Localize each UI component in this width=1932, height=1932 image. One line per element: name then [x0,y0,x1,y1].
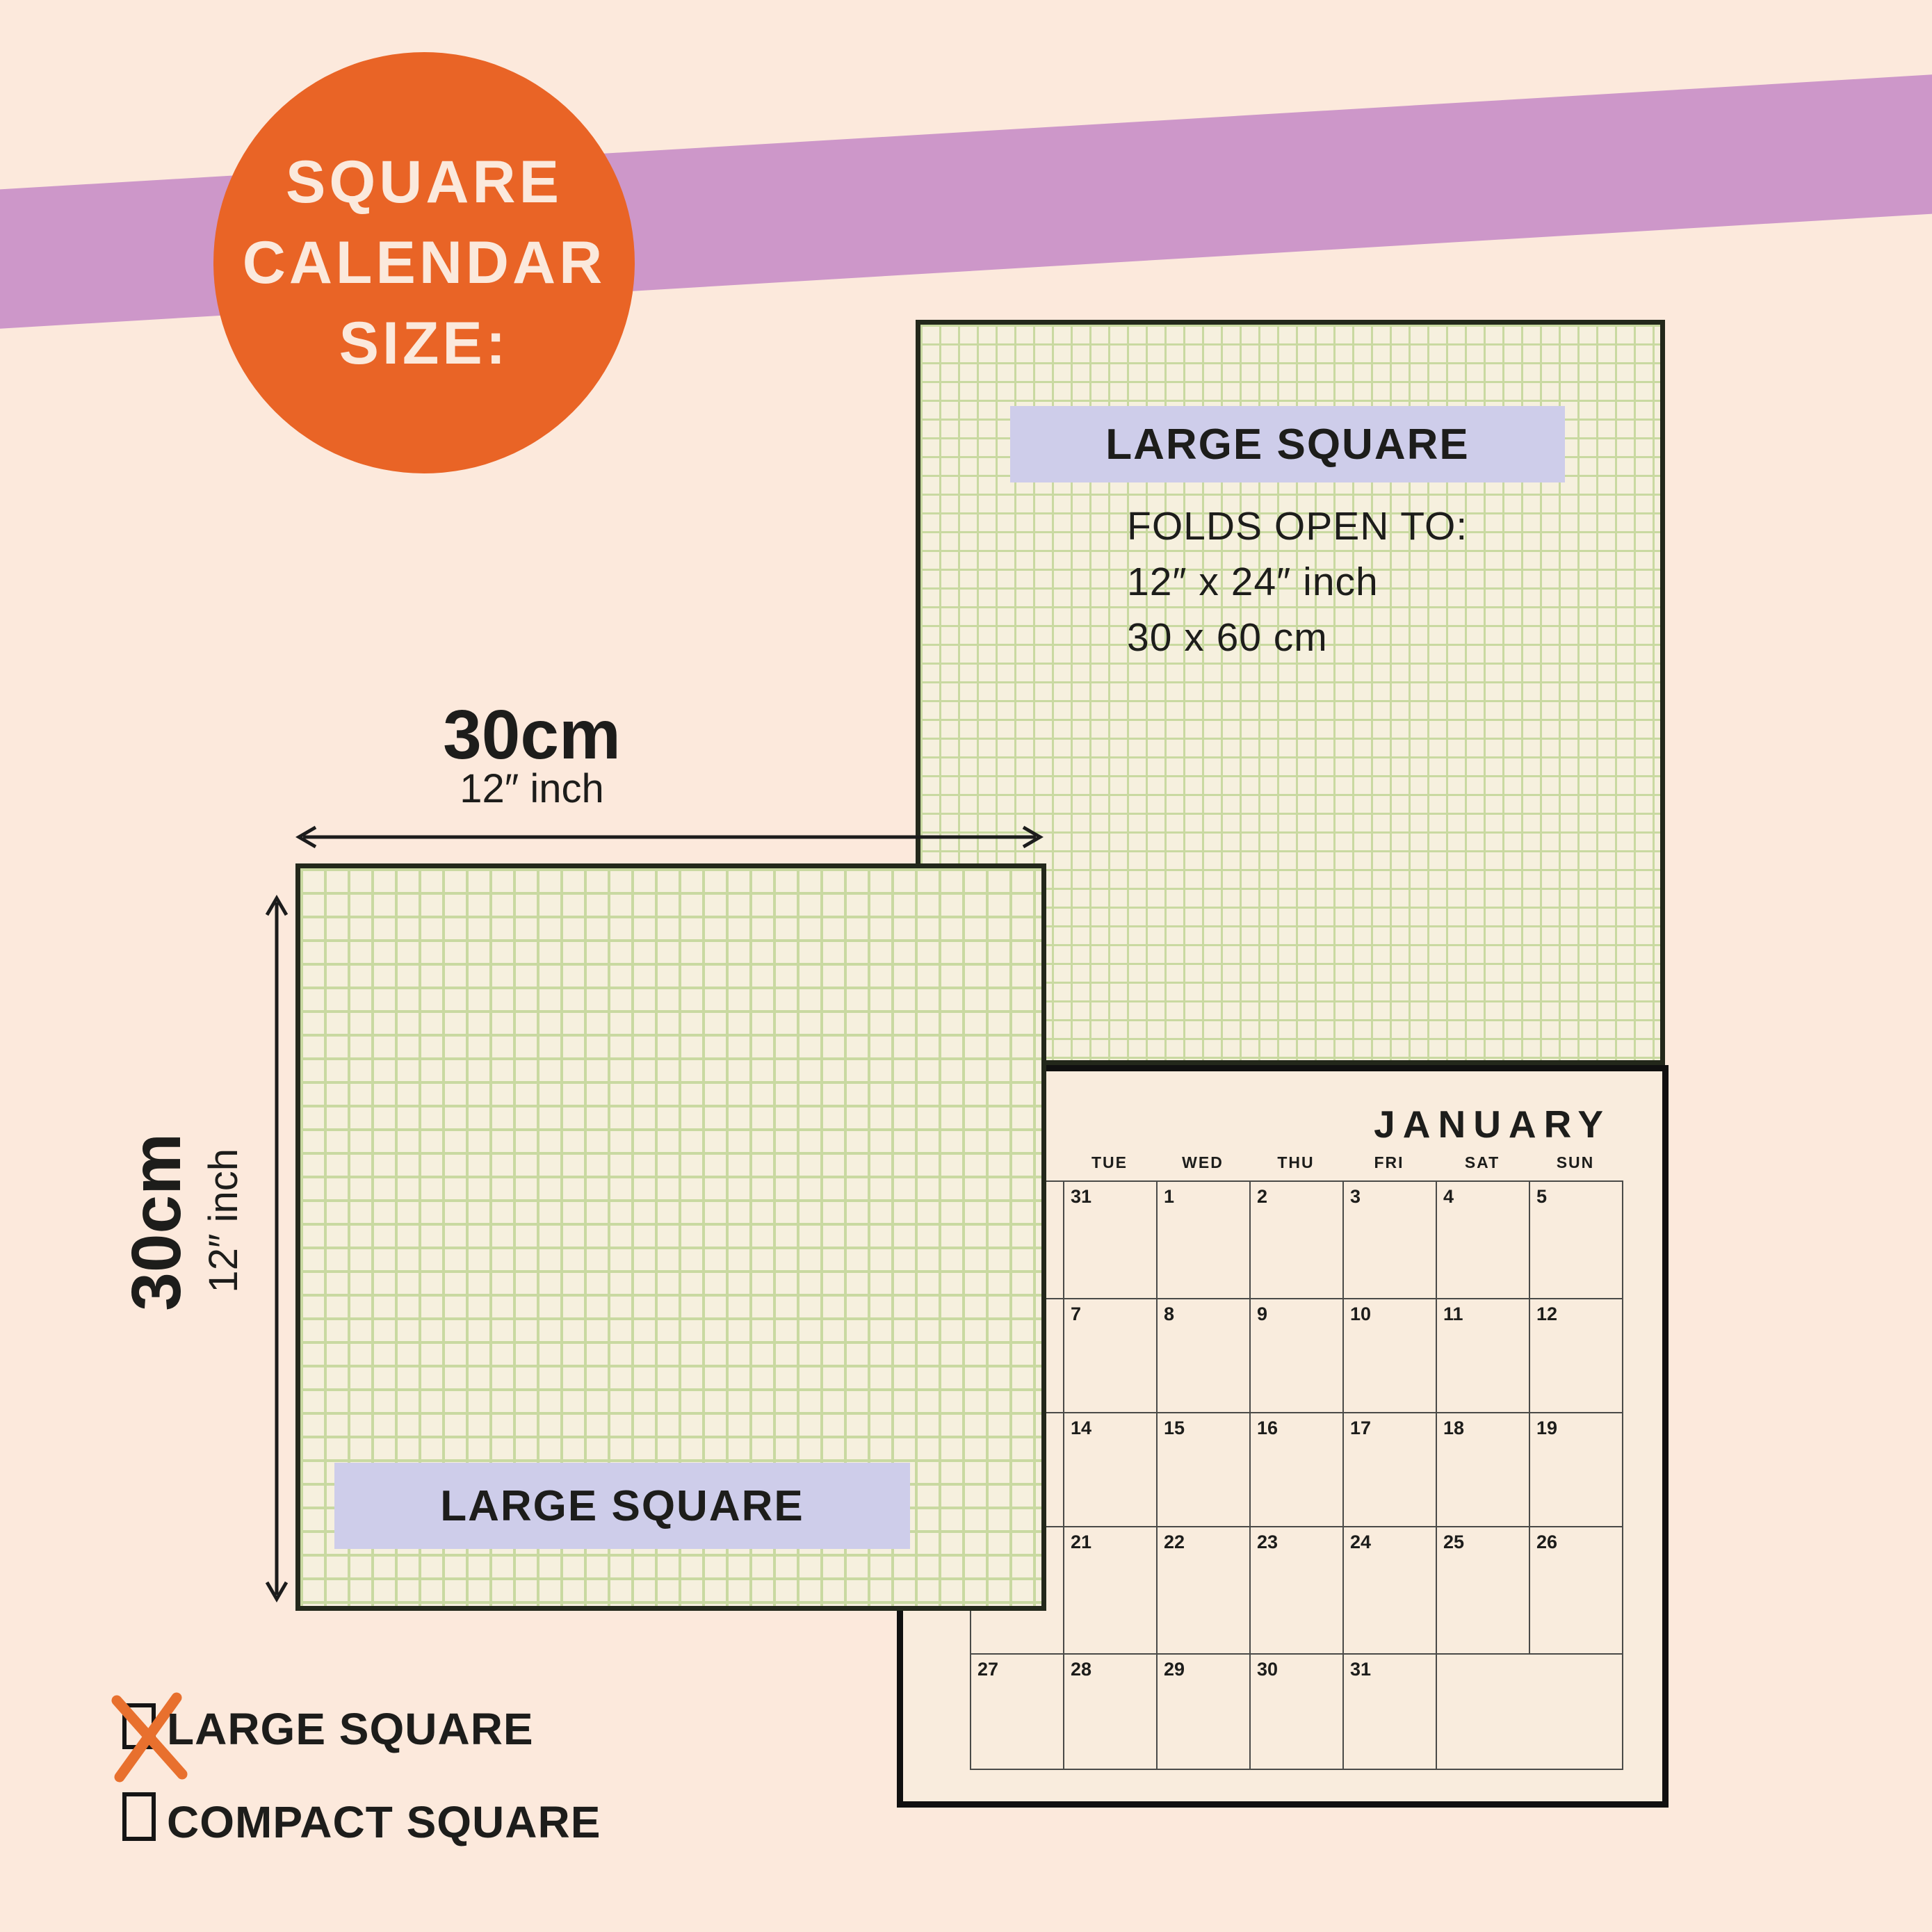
date-cell: 17 [1344,1413,1437,1527]
date-cell: 21 [1064,1527,1158,1655]
height-cm: 30cm [117,1133,197,1311]
folds-size-inch: 12″ x 24″ inch [1127,554,1468,610]
date-cell: 19 [1530,1413,1623,1527]
option-large-square[interactable]: LARGE SQUARE [122,1703,609,1766]
date-cell: 12 [1530,1299,1623,1413]
folds-size-cm: 30 x 60 cm [1127,610,1468,665]
day-name: THU [1249,1153,1342,1172]
date-cell: 29 [1158,1655,1251,1770]
checkbox-compact-square[interactable] [122,1792,156,1841]
height-arrow [263,893,291,1605]
date-cell: 5 [1530,1182,1623,1299]
date-cell: 9 [1251,1299,1344,1413]
day-name: FRI [1342,1153,1436,1172]
calendar-day-names: TUE WED THU FRI SAT SUN [970,1153,1622,1172]
day-name: TUE [1063,1153,1156,1172]
day-name: WED [1156,1153,1249,1172]
badge-line-3: SIZE: [339,303,510,384]
day-name: SUN [1529,1153,1622,1172]
folds-open-text: FOLDS OPEN TO: 12″ x 24″ inch 30 x 60 cm [1127,498,1468,665]
date-cell: 14 [1064,1413,1158,1527]
option-compact-square-label: COMPACT SQUARE [167,1796,601,1848]
date-cell: 24 [1344,1527,1437,1655]
date-cell: 27 [971,1655,1064,1770]
date-cell: 23 [1251,1527,1344,1655]
badge-line-1: SQUARE [286,142,562,222]
date-cell: 2 [1251,1182,1344,1299]
width-arrow [292,825,1047,850]
date-cell: 18 [1437,1413,1530,1527]
date-cell: 26 [1530,1527,1623,1655]
size-badge: SQUARE CALENDAR SIZE: [213,52,635,473]
date-cell: 7 [1064,1299,1158,1413]
date-cell: 22 [1158,1527,1251,1655]
date-cell: 28 [1064,1655,1158,1770]
date-cell-empty [1437,1655,1623,1770]
top-square-label-text: LARGE SQUARE [1105,420,1469,469]
date-cell: 3 [1344,1182,1437,1299]
date-cell: 15 [1158,1413,1251,1527]
folds-title: FOLDS OPEN TO: [1127,498,1468,554]
left-square-label-text: LARGE SQUARE [440,1482,804,1531]
date-cell: 11 [1437,1299,1530,1413]
calendar-date-grid: 31 1 2 3 4 5 7 8 9 10 11 12 14 15 16 17 … [970,1180,1623,1770]
width-inch: 12″ inch [443,765,621,812]
day-name: SAT [1436,1153,1529,1172]
date-cell: 31 [1344,1655,1437,1770]
date-cell: 30 [1251,1655,1344,1770]
top-square-label: LARGE SQUARE [1010,406,1565,482]
option-compact-square[interactable]: COMPACT SQUARE [122,1792,609,1855]
date-cell: 8 [1158,1299,1251,1413]
badge-line-2: CALENDAR [243,222,606,303]
date-cell: 31 [1064,1182,1158,1299]
date-cell: 1 [1158,1182,1251,1299]
closed-square: LARGE SQUARE [295,863,1046,1611]
poster-canvas: SQUARE CALENDAR SIZE: LARGE SQUARE FOLDS… [0,0,1932,1932]
calendar-month-title: JANUARY [1374,1102,1611,1146]
height-inch: 12″ inch [200,1148,247,1293]
width-cm: 30cm [443,695,621,775]
width-label: 30cm 12″ inch [443,695,621,812]
date-cell: 25 [1437,1527,1530,1655]
left-square-label: LARGE SQUARE [334,1463,910,1549]
date-cell: 10 [1344,1299,1437,1413]
date-cell: 16 [1251,1413,1344,1527]
option-large-square-label: LARGE SQUARE [167,1703,534,1755]
date-cell: 4 [1437,1182,1530,1299]
